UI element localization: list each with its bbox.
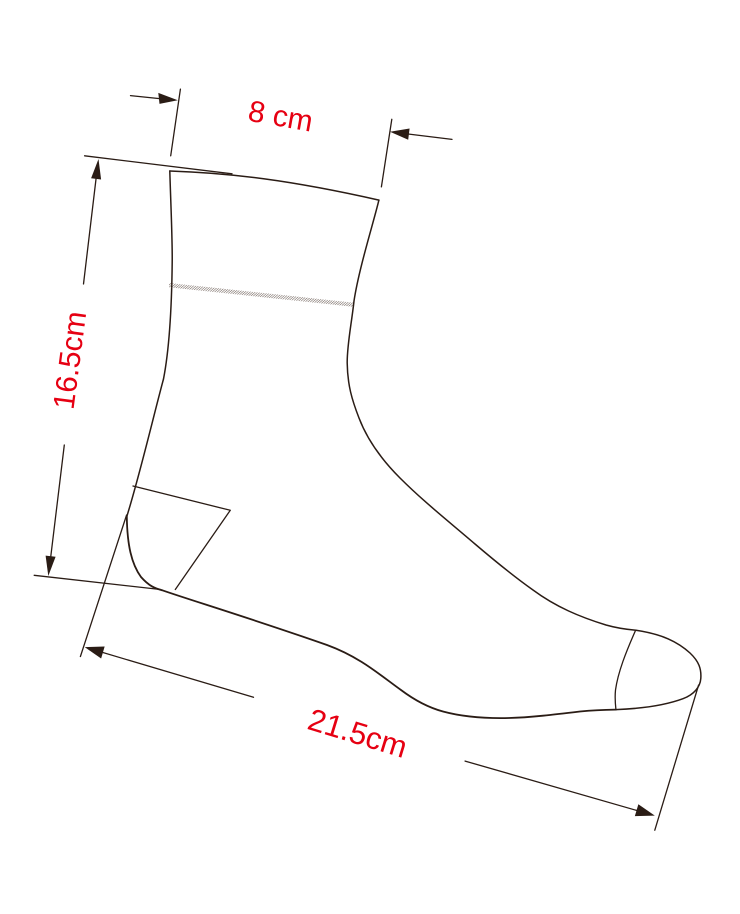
svg-text:21.5cm: 21.5cm (304, 702, 411, 765)
svg-text:8 cm: 8 cm (246, 95, 316, 139)
svg-text:16.5cm: 16.5cm (48, 309, 94, 411)
